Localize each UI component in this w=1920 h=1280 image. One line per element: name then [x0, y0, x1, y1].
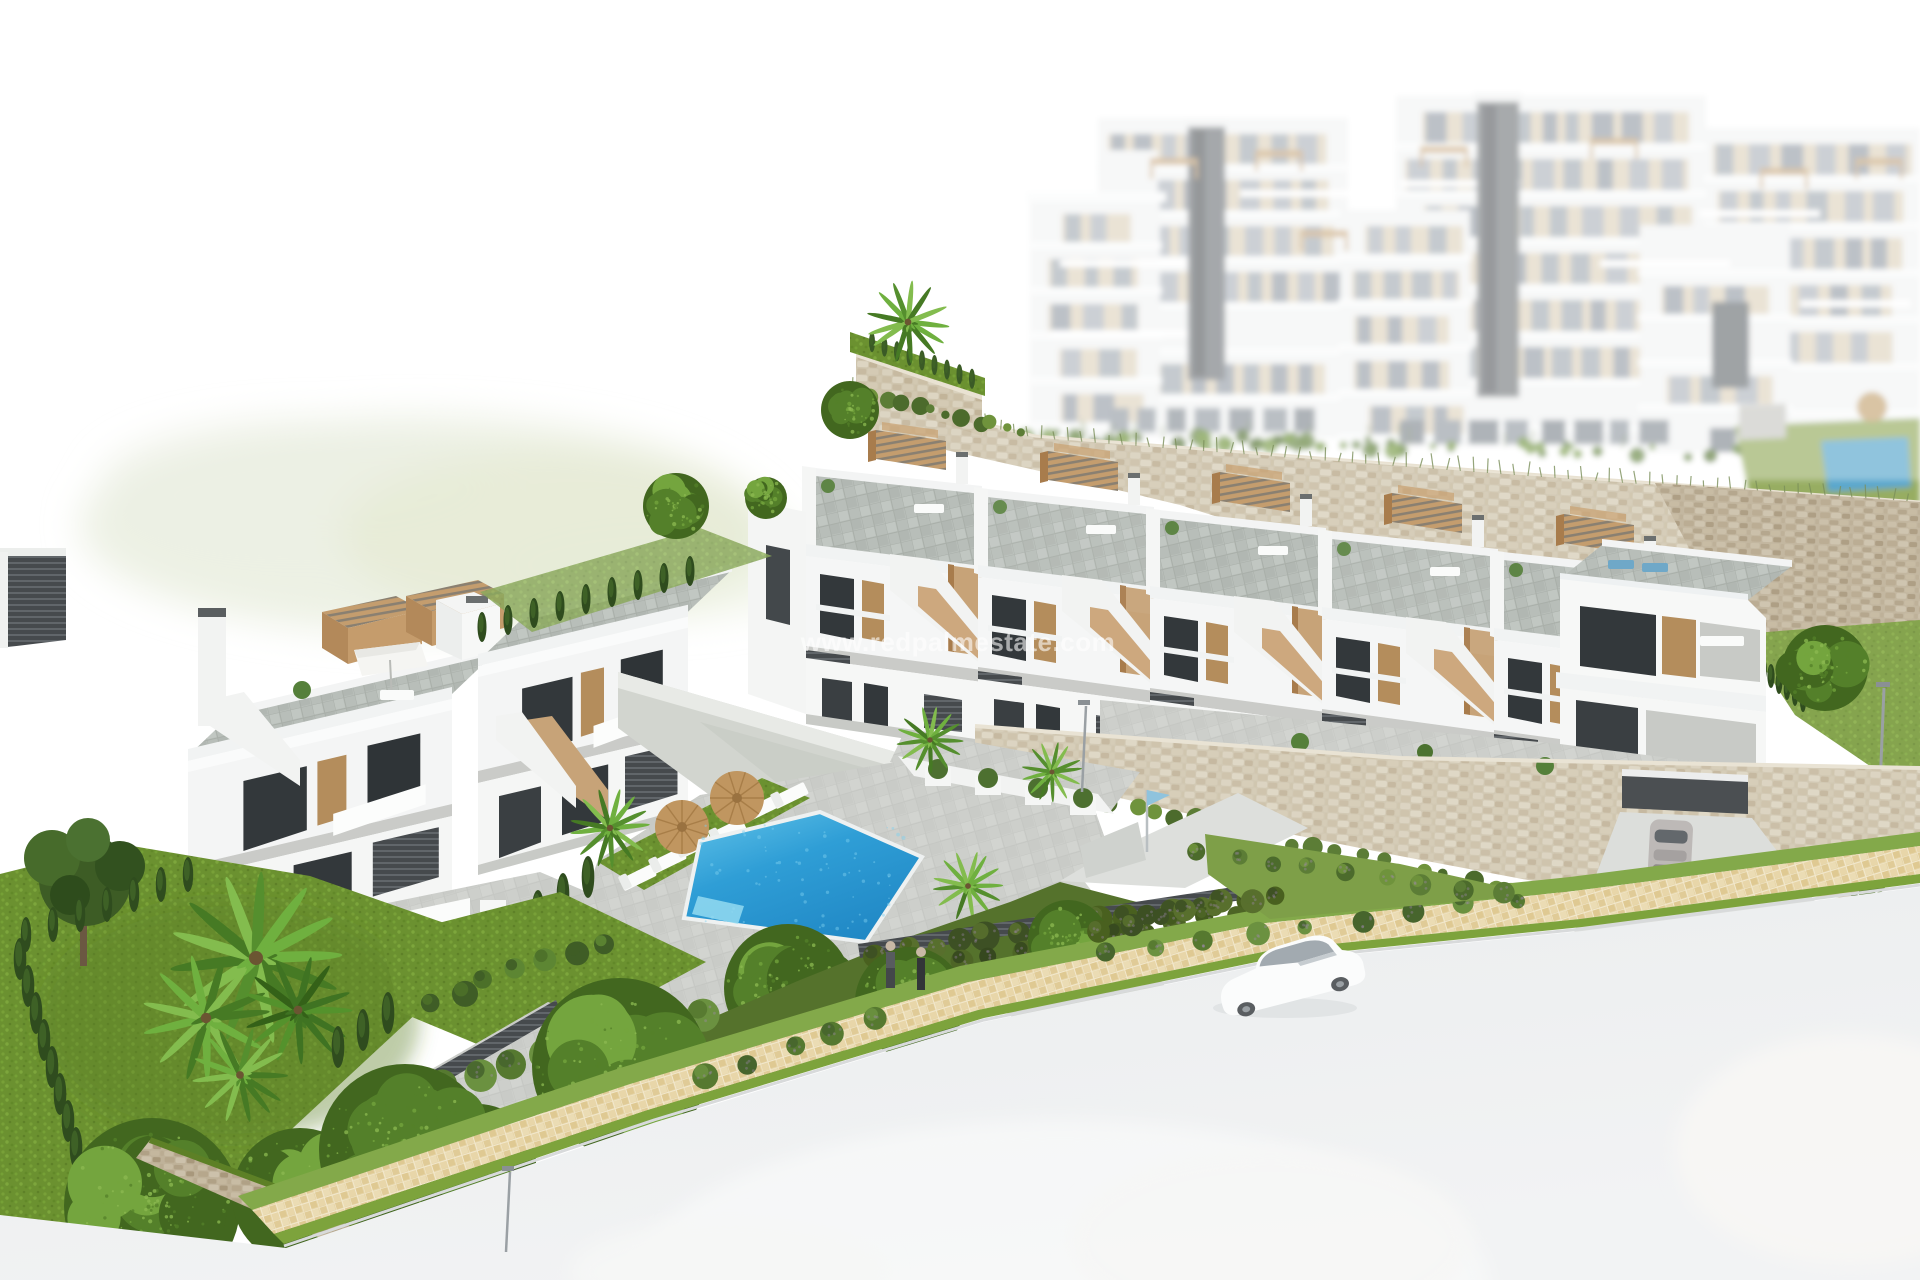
svg-text:www.redpalmestate.com: www.redpalmestate.com — [800, 627, 1115, 657]
